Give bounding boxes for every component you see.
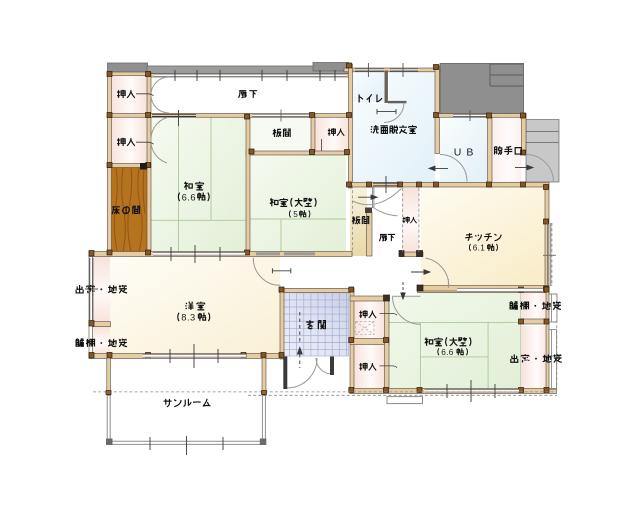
- svg-text:6.1: 6.1: [473, 244, 485, 253]
- svg-text:6.6: 6.6: [182, 192, 196, 202]
- svg-text:UB: UB: [454, 146, 479, 158]
- svg-text:8.3: 8.3: [181, 313, 195, 323]
- svg-text:6.6: 6.6: [441, 348, 454, 357]
- svg-text:5: 5: [293, 210, 298, 219]
